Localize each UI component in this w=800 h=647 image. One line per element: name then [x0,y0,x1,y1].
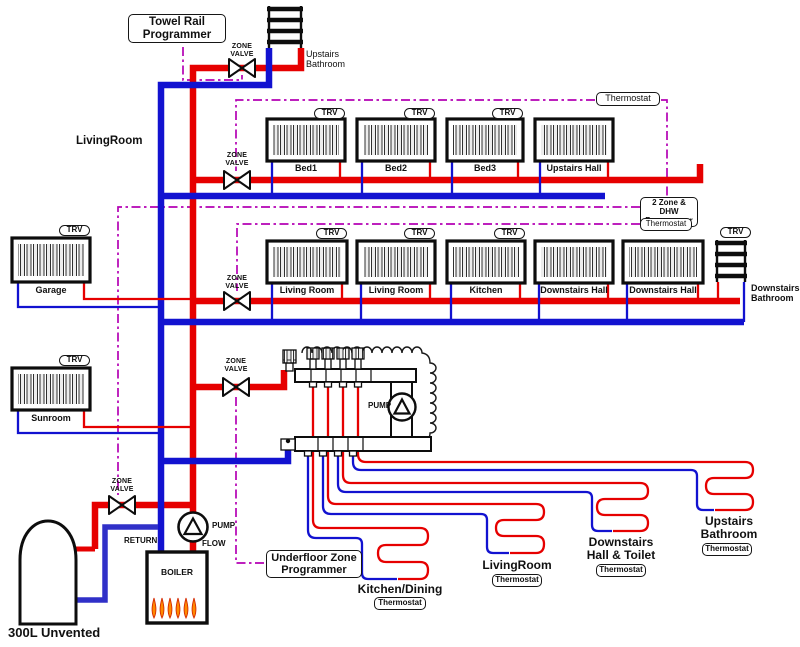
radiator-sunroom [12,368,90,410]
zone-valve-label-downstairs: ZONEVALVE [215,275,259,291]
radiator-garage [12,238,90,282]
loop-label-upstairs-bathroom: Upstairs Bathroom [690,515,768,540]
radiator-label-living-room-2: Living Room [357,285,435,295]
thermostat-upstairs-zone: Thermostat [596,92,660,106]
heating-system-diagram: Towel Rail Programmer Upstairs Bathroom … [0,0,800,647]
towel-rail-programmer: Towel Rail Programmer [128,14,226,43]
livingroom-area-label: LivingRoom [76,135,142,148]
piping-schematic [0,0,800,647]
zone-valve-underfloor [223,378,249,396]
underfloor-flow-loops [313,384,753,579]
trv-bed2: TRV [404,108,435,119]
upstairs-bathroom-label: Upstairs Bathroom [306,49,345,69]
trv-sunroom: TRV [59,355,90,366]
zone-valve-label-cylinder: ZONEVALVE [100,478,144,494]
trv-bed1: TRV [314,108,345,119]
main-pump-label: PUMP [212,522,235,531]
towel-rail-upstairs-bathroom [267,6,303,48]
zone-valve-towel-rail [229,59,255,77]
boiler-label: BOILER [147,568,207,578]
radiator-label-bed1: Bed1 [267,163,345,173]
return-label: RETURN [124,537,157,546]
zone-valve-label-towel: ZONEVALVE [220,43,264,59]
zone-valve-downstairs [224,292,250,310]
cylinder-300l [20,521,76,624]
boiler [147,552,207,623]
flow-label: FLOW [202,540,226,549]
trv-bed3: TRV [492,108,523,119]
radiator-label-bed2: Bed2 [357,163,435,173]
underfloor-pump-icon [389,394,416,421]
radiator-downstairs-hall-2 [623,241,703,283]
trv-kitchen: TRV [494,228,525,239]
downstairs-bathroom-label: Downstairs Bathroom [751,283,800,303]
radiator-label-garage: Garage [12,285,90,295]
main-pump-icon [179,513,208,542]
trv-living-room-1: TRV [316,228,347,239]
radiator-living-room-2 [357,241,435,283]
trv-downstairs-bathroom: TRV [720,227,751,238]
underfloor-zone-programmer: Underfloor Zone Programmer [266,550,362,578]
trv-living-room-2: TRV [404,228,435,239]
zone-valve-label-underfloor: ZONEVALVE [214,358,258,374]
manifold-coil-decoration [302,347,436,440]
radiator-label-bed3: Bed3 [447,163,523,173]
loop-label-downstairs-hall-toilet: Downstairs Hall & Toilet [578,536,664,561]
radiator-label-downstairs-hall-2: Downstairs Hall [616,285,710,295]
loop-thermostat-livingroom: Thermostat [492,574,542,587]
loop-thermostat-upstairs-bathroom: Thermostat [702,543,752,556]
radiator-label-upstairs-hall: Upstairs Hall [535,163,613,173]
loop-thermostat-kitchen-dining: Thermostat [374,597,426,610]
underfloor-pump-label: PUMP [368,402,391,411]
radiator-label-sunroom: Sunroom [12,413,90,423]
radiator-bed3 [447,119,523,161]
radiator-living-room-1 [267,241,347,283]
radiator-bed1 [267,119,345,161]
zone-valve-cylinder [109,496,135,514]
loop-label-kitchen-dining: Kitchen/Dining [355,583,445,596]
radiator-downstairs-hall-1 [535,241,613,283]
radiator-bed2 [357,119,435,161]
radiator-upstairs-hall [535,119,613,161]
zone-valve-upstairs [224,171,250,189]
manifold-flow-fitting [283,350,296,371]
thermostat-downstairs-zone: Thermostat [640,218,692,231]
loop-label-livingroom: LivingRoom [477,559,557,572]
cylinder-label: 300L Unvented [8,626,100,641]
radiator-label-kitchen: Kitchen [447,285,525,295]
trv-garage: TRV [59,225,90,236]
radiator-return-tails [18,161,744,433]
towel-rail-downstairs-bathroom [715,240,747,282]
zone-valve-label-upstairs: ZONEVALVE [215,152,259,168]
radiator-label-living-room-1: Living Room [267,285,347,295]
loop-thermostat-downstairs-hall-toilet: Thermostat [596,564,646,577]
radiator-kitchen [447,241,525,283]
radiator-label-downstairs-hall-1: Downstairs Hall [527,285,621,295]
